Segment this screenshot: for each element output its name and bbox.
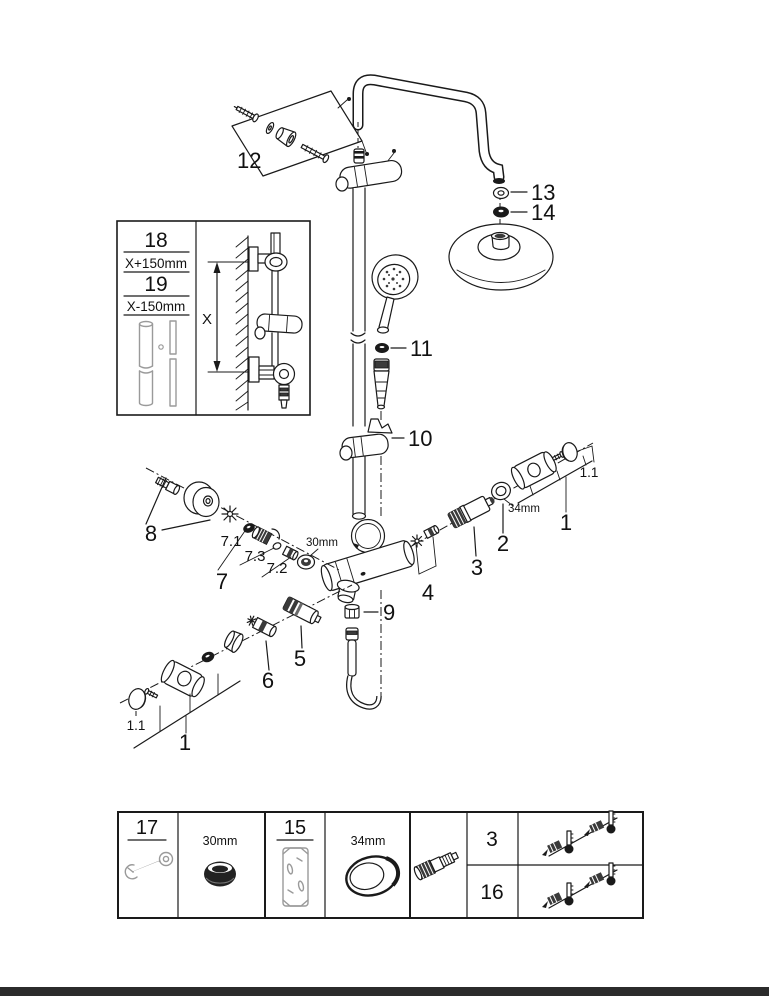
bracket-hook — [368, 419, 392, 433]
inset-offset-18: X+150mm — [125, 256, 187, 271]
cap-sleeve-icon — [222, 629, 245, 654]
callout-14: 14 — [531, 200, 555, 225]
valve-housing-left — [159, 659, 207, 699]
dimension-x-label: X — [202, 311, 212, 328]
stop-screw-icon — [155, 476, 181, 496]
callout-1-1-right: 1.1 — [580, 465, 599, 480]
small-o-ring-icon — [272, 542, 282, 551]
hose-nut: 9 — [345, 600, 395, 625]
nut-30mm-icon — [204, 862, 236, 887]
insert-arrow-dot — [392, 149, 396, 153]
callout-7-2: 7.2 — [267, 560, 288, 577]
sleeve-tool-icon — [283, 848, 308, 906]
diagram-canvas: 12 13 14 — [0, 0, 769, 1000]
table-label-17: 17 — [136, 817, 158, 839]
callout-6: 6 — [262, 668, 274, 693]
nut-30mm-part — [298, 555, 315, 569]
callout-7-3: 7.3 — [245, 548, 266, 565]
table-label-30mm: 30mm — [203, 834, 238, 848]
escutcheon-icon — [274, 125, 298, 148]
table-label-15: 15 — [284, 817, 306, 839]
hand-shower — [366, 249, 423, 333]
footer-bar — [0, 987, 769, 996]
installation-inset-box: 18 X+150mm 19 X-150mm — [117, 221, 310, 415]
callout-2: 2 — [497, 531, 509, 556]
hand-shower-handle — [379, 297, 394, 331]
insert-arrow-dot — [365, 152, 369, 156]
table-label-34mm: 34mm — [351, 834, 386, 848]
head-shower — [449, 224, 553, 290]
insert-bushing-icon — [424, 525, 440, 538]
callout-8: 8 — [145, 521, 157, 546]
callout-11: 11 — [410, 336, 433, 361]
callout-12: 12 — [237, 148, 261, 173]
mounting-screw-icon — [232, 103, 259, 123]
rail-wall-clamp — [336, 149, 403, 191]
callout-10: 10 — [408, 426, 432, 451]
shower-rail — [351, 188, 366, 519]
rail-bottom-cap — [353, 513, 366, 519]
callout-7: 7 — [216, 569, 228, 594]
insert-arrow-dot — [347, 97, 351, 101]
valve-part-6 — [245, 614, 277, 638]
washer-icon — [265, 121, 275, 134]
table-label-16: 16 — [480, 881, 503, 904]
mounting-screw-icon — [300, 142, 330, 163]
bushing-icon — [283, 546, 299, 560]
callout-9: 9 — [383, 600, 395, 625]
callout-3: 3 — [471, 555, 483, 580]
rail-tube-short — [170, 321, 176, 406]
exploded-parts-diagram: 12 13 14 — [0, 0, 769, 1000]
inset-label-19: 19 — [144, 273, 167, 296]
check-valve-group: 4 3 34mm 2 — [410, 441, 598, 605]
hand-shower-union: 11 — [374, 336, 433, 697]
table-label-3: 3 — [486, 828, 498, 851]
o-ring-13 — [494, 188, 509, 199]
inset-label-18: 18 — [144, 229, 167, 252]
callout-1-1-left: 1.1 — [127, 718, 146, 733]
control-wheel — [184, 482, 219, 517]
check-valve-part — [447, 492, 497, 529]
callout-7-1: 7.1 — [221, 533, 242, 550]
callout-1-left: 1 — [179, 730, 191, 755]
inset-offset-19: X-150mm — [127, 299, 186, 314]
cartridge-group: 5 6 1.1 — [120, 585, 352, 755]
callout-1-right: 1 — [560, 510, 572, 535]
callout-4: 4 — [422, 580, 434, 605]
flow-control-group: 8 30mm 7. — [145, 468, 341, 594]
arm-end-cap — [493, 178, 505, 184]
star-clip-icon — [222, 506, 238, 522]
head-washers: 13 14 — [493, 180, 555, 225]
star-washer-icon — [411, 535, 423, 547]
tools-table: 17 30mm 15 — [118, 811, 643, 918]
clamp-screw-plug — [354, 149, 364, 163]
label-30mm: 30mm — [306, 537, 338, 549]
shower-hose — [346, 628, 379, 707]
callout-5: 5 — [294, 646, 306, 671]
label-34mm: 34mm — [508, 503, 540, 515]
shower-arm — [358, 80, 505, 233]
cartridge-part — [283, 596, 323, 626]
